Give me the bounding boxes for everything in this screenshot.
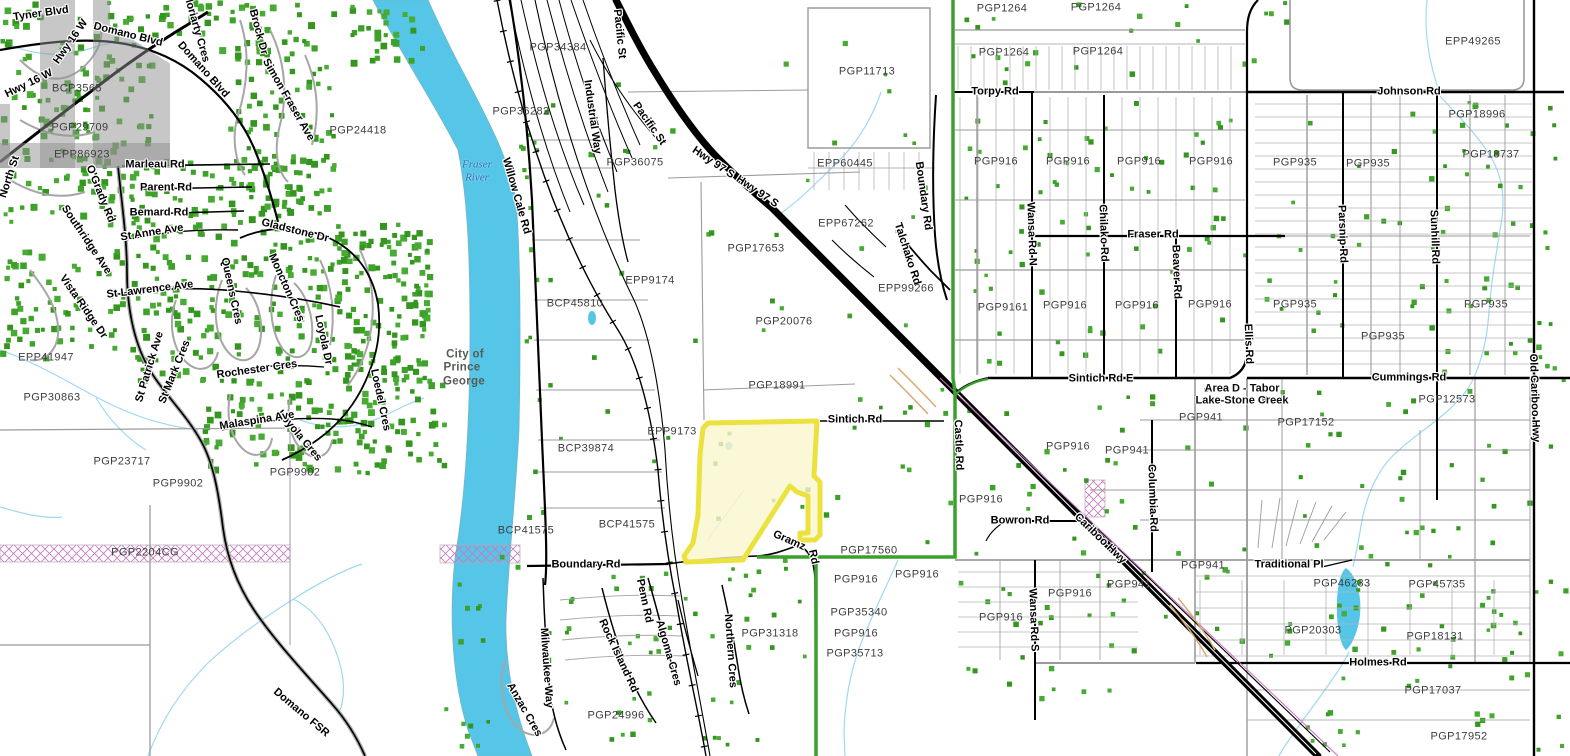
map-label-pgp916: PGP916 <box>834 575 878 586</box>
map-label-pgp18991: PGP18991 <box>748 381 805 392</box>
map-label-pgp36282: PGP36282 <box>492 107 549 118</box>
map-label-pgp916: PGP916 <box>974 157 1018 168</box>
map-label-traditional-pl: Traditional Pl <box>1254 560 1323 571</box>
map-label-pgp17560: PGP17560 <box>840 546 897 557</box>
map-label-pgp31318: PGP31318 <box>741 629 798 640</box>
map-label-pgp1264: PGP1264 <box>1073 47 1124 58</box>
map-label-pgp941: PGP941 <box>1107 580 1151 591</box>
map-label-river: River <box>465 173 489 184</box>
map-label-pgp1264: PGP1264 <box>979 48 1030 59</box>
map-label-pgp9902: PGP9902 <box>270 468 321 479</box>
map-label-lake-stone-creek: Lake-Stone Creek <box>1196 396 1289 407</box>
map-label-epp9173: EPP9173 <box>647 427 696 438</box>
map-label-epp60445: EPP60445 <box>817 159 873 170</box>
map-label-pgp941: PGP941 <box>1105 446 1149 457</box>
map-label-pgp11713: PGP11713 <box>839 67 895 78</box>
map-label-bcp3565: BCP3565 <box>52 84 102 95</box>
map-label-old-cariboo-hwy: Old Cariboo Hwy <box>1527 354 1541 443</box>
map-label-pgp35340: PGP35340 <box>830 608 887 619</box>
map-label-pgp18737: PGP18737 <box>1462 150 1519 161</box>
map-label-pgp916: PGP916 <box>959 495 1003 506</box>
map-label-pgp18131: PGP18131 <box>1406 632 1463 643</box>
map-label-bcp41575: BCP41575 <box>498 526 554 537</box>
map-label-marleau-rd: Marleau Rd <box>125 160 184 171</box>
map-label-pgp12573: PGP12573 <box>1418 395 1475 406</box>
map-label-epp49265: EPP49265 <box>1445 37 1501 48</box>
map-label-pgp17037: PGP17037 <box>1404 686 1461 697</box>
map-label-bcp41575: BCP41575 <box>599 520 655 531</box>
map-label-pgp916: PGP916 <box>1189 157 1233 168</box>
map-label-city-of: City of <box>446 349 484 361</box>
map-label-parsnip-rd: Parsnip Rd <box>1335 205 1348 263</box>
map-label-pgp17152: PGP17152 <box>1277 418 1334 429</box>
map-label-bcp45810: BCP45810 <box>547 299 603 310</box>
map-label-beaver-rd: Beaver Rd <box>1170 245 1183 300</box>
map-label-pgp935: PGP935 <box>1361 332 1405 343</box>
map-label-pgp916: PGP916 <box>1115 301 1159 312</box>
map-label-fraser-rd: Fraser Rd <box>1127 230 1178 241</box>
map-label-holmes-rd: Holmes Rd <box>1349 658 1406 669</box>
map-label-bemard-rd: Bemard Rd <box>130 208 189 219</box>
map-label-epp86923: EPP86923 <box>54 150 110 161</box>
map-label-pgp18996: PGP18996 <box>1448 110 1505 121</box>
map-label-wansa-rd-n: Wansa Rd N <box>1024 202 1037 266</box>
map-label-area-d-tabor: Area D - Tabor <box>1205 384 1280 395</box>
map-label-pgp17952: PGP17952 <box>1430 732 1487 743</box>
map-label-pgp20076: PGP20076 <box>755 317 812 328</box>
map-label-pgp916: PGP916 <box>1046 442 1090 453</box>
map-label-castle-rd: Castle Rd <box>952 419 965 470</box>
map-label-sunhill-rd: Sunhill Rd <box>1428 210 1441 265</box>
map-label-pgp45735: PGP45735 <box>1408 580 1465 591</box>
map-label-pgp24996: PGP24996 <box>587 711 644 722</box>
map-label-pgp20303: PGP20303 <box>1284 626 1341 637</box>
map-label-ellis-rd: Ellis Rd <box>1242 324 1254 365</box>
map-label-chilako-rd: Chilako Rd <box>1097 204 1110 262</box>
map-label-pgp2204cg: PGP2204CG <box>111 548 179 559</box>
map-label-bcp39874: BCP39874 <box>558 444 614 455</box>
map-label-pgp935: PGP935 <box>1464 300 1508 311</box>
map-label-pgp34384: PGP34384 <box>529 43 586 54</box>
map-label-pgp916: PGP916 <box>1048 589 1092 600</box>
map-label-pgp23717: PGP23717 <box>93 457 150 468</box>
map-label-pgp35713: PGP35713 <box>826 649 883 660</box>
map-label-pgp30863: PGP30863 <box>23 393 80 404</box>
map-label-pgp916: PGP916 <box>1188 300 1232 311</box>
map-label-pgp916: PGP916 <box>895 570 939 581</box>
map-label-cummings-rd: Cummings Rd <box>1372 373 1447 384</box>
map-label-pgp29709: PGP29709 <box>51 123 108 134</box>
map-label-pgp46233: PGP46233 <box>1313 579 1370 590</box>
map-label-pgp935: PGP935 <box>1346 159 1390 170</box>
map-label-pgp9161: PGP9161 <box>978 303 1029 314</box>
map-label-wansa-rd-s: Wansa Rd S <box>1026 588 1039 652</box>
map-label-sintich-rd: Sintich Rd <box>828 415 882 426</box>
map-label-pgp935: PGP935 <box>1273 300 1317 311</box>
map-label-parent-rd: Parent Rd <box>140 183 192 194</box>
map-label-johnson-rd: Johnson Rd <box>1377 87 1441 98</box>
map-label-prince: Prince <box>444 362 481 374</box>
map-label-boundary-rd: Boundary Rd <box>551 560 620 571</box>
map-label-bowron-rd: Bowron Rd <box>991 516 1050 527</box>
map-label-columbia-rd: Columbia Rd <box>1145 464 1158 532</box>
map-label-pgp17653: PGP17653 <box>727 244 784 255</box>
map-label-pgp916: PGP916 <box>979 613 1023 624</box>
map-label-pgp916: PGP916 <box>1117 157 1161 168</box>
map-label-george: George <box>443 376 485 388</box>
map-label-epp99266: EPP99266 <box>878 284 934 295</box>
map-label-epp41947: EPP41947 <box>18 353 74 364</box>
map-label-sintich-rd-e: Sintich Rd E <box>1069 374 1134 385</box>
parcel-grid-lines <box>814 46 1532 656</box>
map-label-pgp24418: PGP24418 <box>329 126 386 137</box>
map-label-pgp916: PGP916 <box>1046 157 1090 168</box>
map-label-pgp935: PGP935 <box>1273 158 1317 169</box>
map-canvas[interactable]: Tyner BlvdHwy 16 WHwy 16 WDomano BlvdDom… <box>0 0 1570 756</box>
map-label-torpy-rd: Torpy Rd <box>971 87 1018 98</box>
map-label-epp9174: EPP9174 <box>625 276 674 287</box>
map-label-rd: Rd <box>806 549 820 566</box>
map-label-pgp916: PGP916 <box>834 629 878 640</box>
map-label-pgp941: PGP941 <box>1181 561 1225 572</box>
map-label-fraser: Fraser <box>462 160 492 171</box>
map-label-pgp36075: PGP36075 <box>606 158 663 169</box>
map-label-pgp941: PGP941 <box>1179 413 1223 424</box>
map-label-pgp1264: PGP1264 <box>977 4 1028 15</box>
map-label-pgp1264: PGP1264 <box>1071 3 1122 14</box>
map-label-pgp9902: PGP9902 <box>153 479 204 490</box>
map-label-epp67262: EPP67262 <box>818 219 874 230</box>
map-label-pgp916: PGP916 <box>1043 301 1087 312</box>
